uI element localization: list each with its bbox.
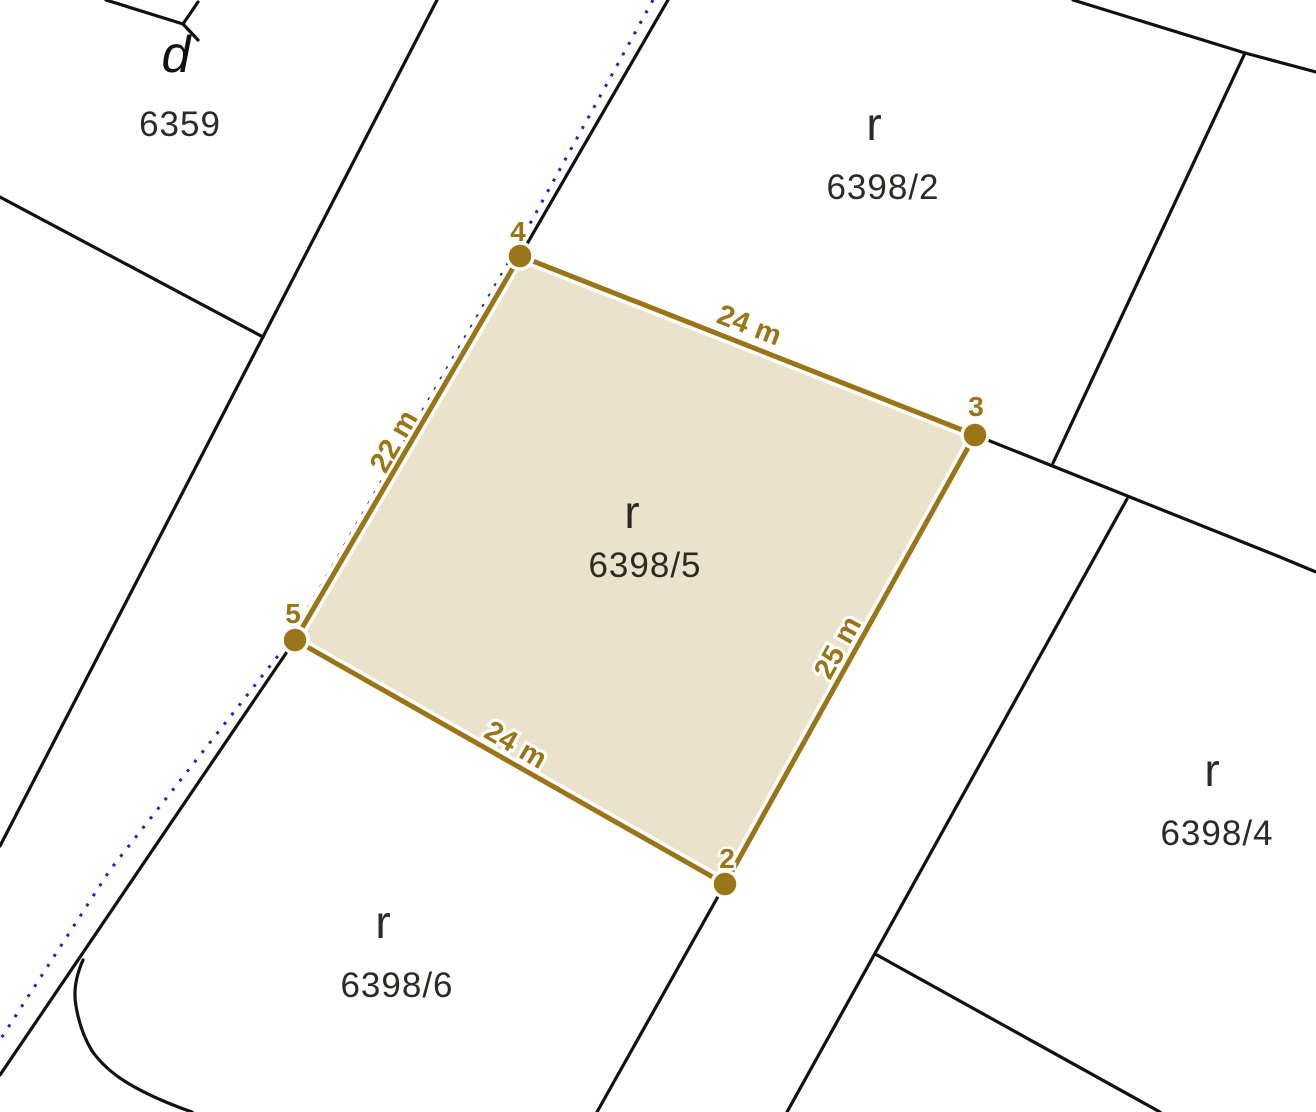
- use-letter-6398-4: r: [1204, 744, 1219, 796]
- boundary-topleft-corner-arm: [183, 2, 198, 24]
- parcel-number-6398-5: 6398/5: [588, 546, 701, 585]
- parcel-number-6398-6: 6398/6: [340, 966, 453, 1005]
- vertex-label-2: 2: [719, 843, 735, 874]
- boundary-southeast-branch: [877, 955, 1160, 1112]
- boundary-6398-2-east: [1053, 53, 1245, 463]
- parcel-number-6359: 6359: [139, 105, 221, 144]
- use-letter-6398-2: r: [866, 98, 881, 150]
- cadastral-map-canvas[interactable]: 24 m 22 m 25 m 24 m 2 3 4 5 d 6359 r 639…: [0, 0, 1316, 1112]
- use-letter-6359: d: [162, 26, 193, 84]
- vertex-label-3: 3: [968, 391, 984, 422]
- parcel-number-6398-4: 6398/4: [1160, 814, 1273, 853]
- boundary-road-east-lower: [0, 640, 295, 1075]
- parcel-number-6398-2: 6398/2: [826, 168, 939, 207]
- boundary-from-vertex3-east: [975, 435, 1316, 572]
- use-letter-6398-5: r: [624, 486, 639, 538]
- vertex-dot-5[interactable]: [282, 627, 308, 653]
- boundary-curve-southwest: [75, 960, 192, 1112]
- cadastral-map-view: 24 m 22 m 25 m 24 m 2 3 4 5 d 6359 r 639…: [0, 0, 1316, 1112]
- boundary-road-east-upper: [520, 0, 668, 256]
- vertex-label-5: 5: [285, 598, 301, 629]
- boundary-topright: [1073, 0, 1316, 72]
- vertex-label-4: 4: [510, 216, 526, 247]
- use-letter-6398-6: r: [375, 896, 390, 948]
- vertex-dot-2[interactable]: [712, 871, 738, 897]
- vertex-dot-3[interactable]: [962, 422, 988, 448]
- boundary-6359-south: [0, 197, 263, 337]
- boundary-from-vertex2: [597, 884, 725, 1112]
